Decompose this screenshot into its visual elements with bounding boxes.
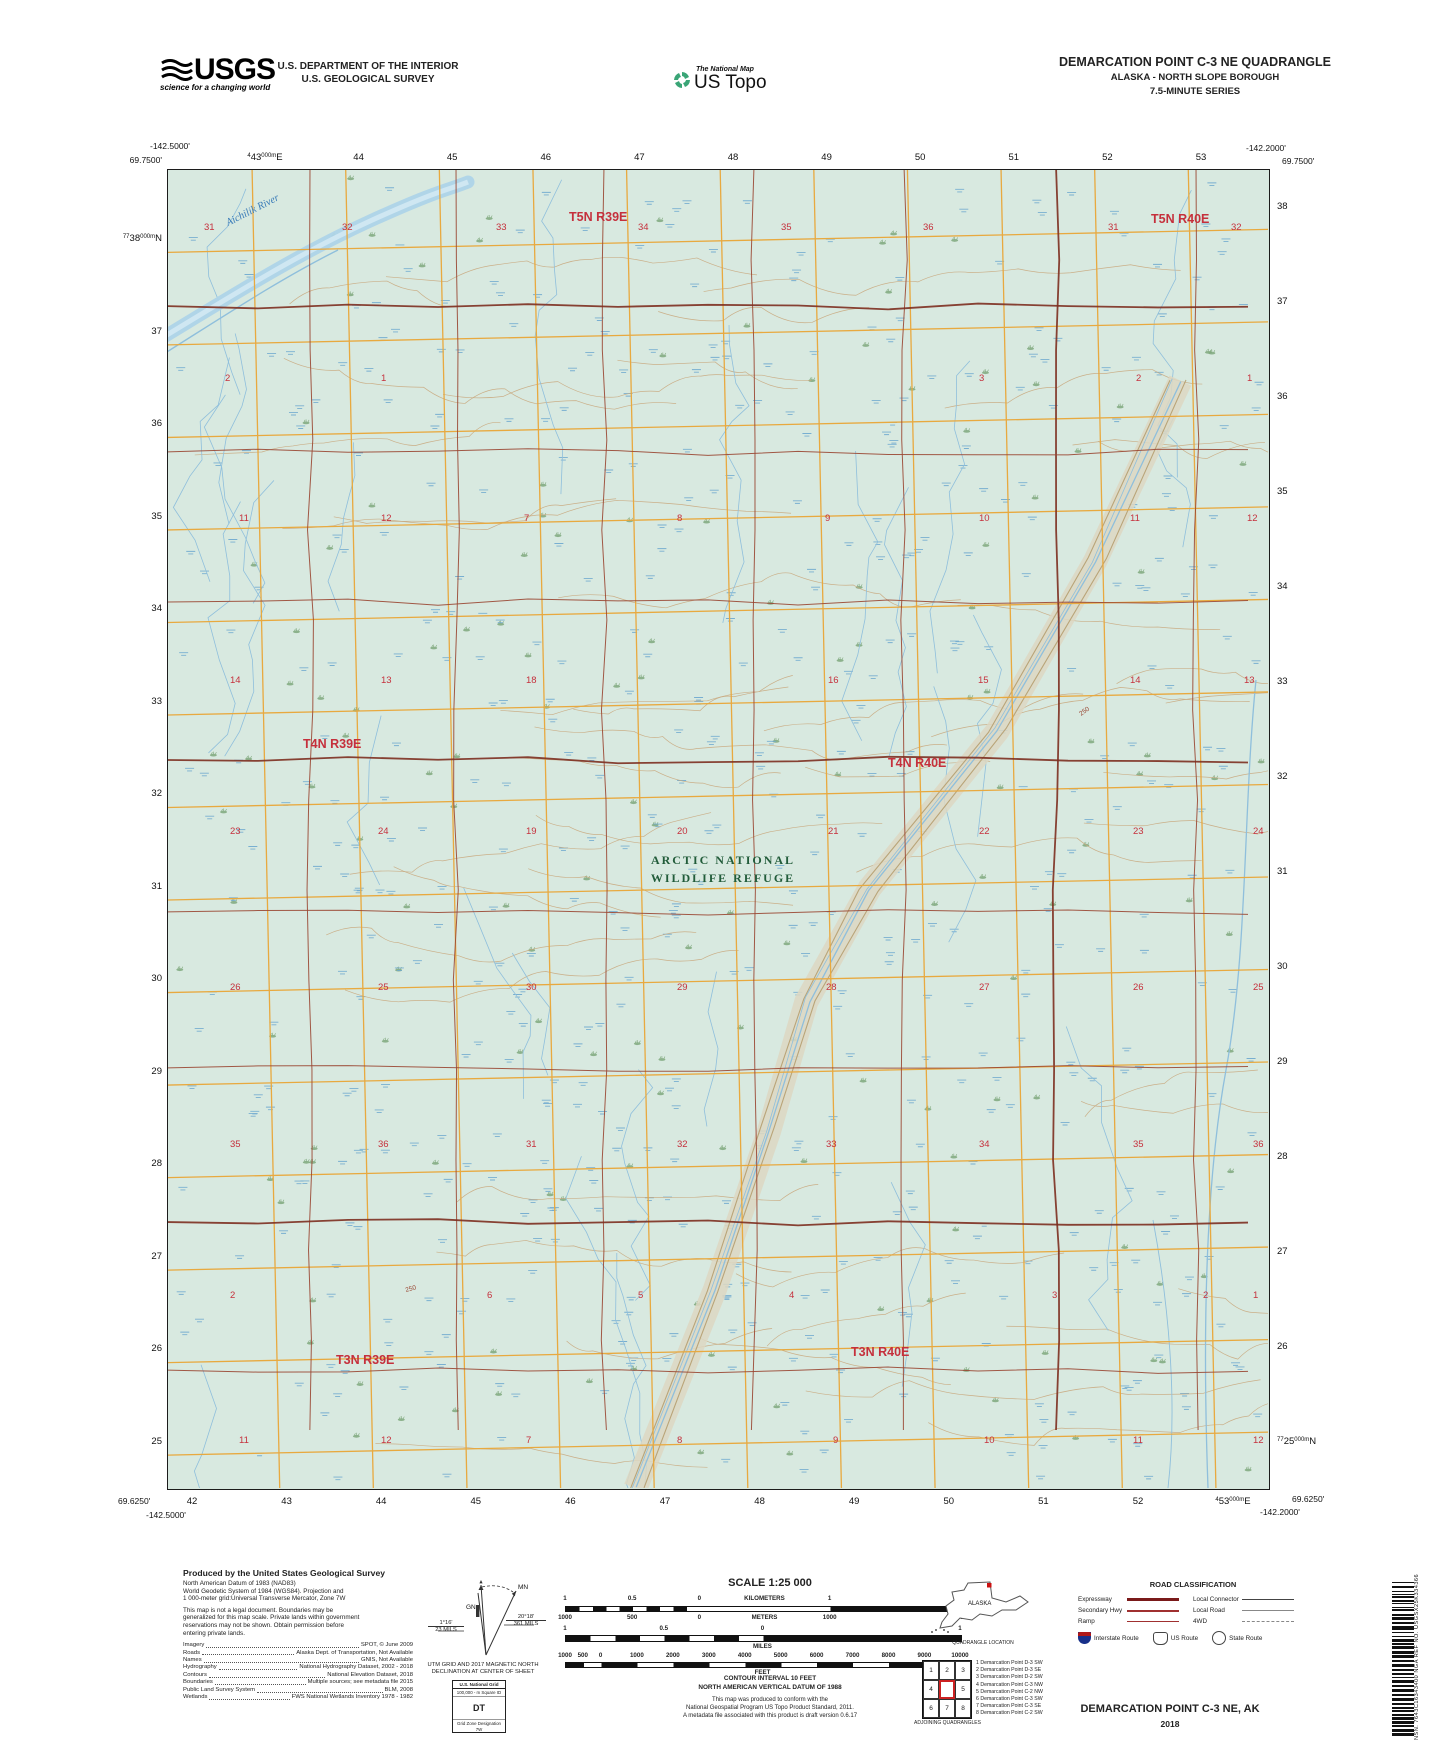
grid-northing-label: 7725000mN	[1277, 1436, 1316, 1447]
usgs-wave-icon	[160, 57, 194, 83]
section-number: 14	[1130, 675, 1141, 686]
usgs-topo-sheet: USGS science for a changing world U.S. D…	[0, 0, 1445, 1746]
grid-easting-label: 50	[915, 152, 926, 163]
quad-subtitle-2: 7.5-MINUTE SERIES	[1000, 86, 1390, 97]
data-source-row: RoadsAlaska Dept. of Transportation, Not…	[183, 1650, 413, 1657]
scale-tick-label: 4000	[738, 1652, 752, 1659]
contour-interval-note: CONTOUR INTERVAL 10 FEET	[555, 1675, 985, 1682]
km-scale-bar	[565, 1606, 962, 1612]
grid-easting-label: 46	[541, 152, 552, 163]
scale-tick-label: 0.5	[628, 1595, 637, 1602]
section-number: 16	[828, 675, 839, 686]
grid-northing-label: 27	[1277, 1246, 1288, 1257]
grid-easting-label: 45	[447, 152, 458, 163]
barcode-reference-numbers: NSN. 7643C16343400 NGA REF NO. USGSX25K3…	[1414, 1582, 1430, 1740]
scale-tick-label: 1000	[558, 1652, 572, 1659]
section-number: 12	[381, 1435, 392, 1446]
township-label: T4N R39E	[303, 737, 361, 751]
adjoining-quad-cell: 1	[923, 1661, 939, 1680]
usng-zone: 7W	[453, 1727, 505, 1732]
ustopo-label: US Topo	[694, 72, 792, 94]
scale-title: SCALE 1:25 000	[555, 1577, 985, 1589]
adjoining-item: 4 Demarcation Point C-3 NW	[976, 1682, 1066, 1689]
grid-northing-label: 33	[1277, 676, 1288, 687]
grid-northing-label: 29	[151, 1066, 162, 1077]
grid-easting-label: 50	[944, 1496, 955, 1507]
scale-tick-label: 500	[627, 1614, 637, 1621]
section-number: 26	[1133, 982, 1144, 993]
refuge-label-line2: WILDLIFE REFUGE	[651, 871, 795, 885]
contour-elevation-label: 250	[405, 1284, 418, 1294]
section-number: 35	[1133, 1139, 1144, 1150]
adjoining-item: 3 Demarcation Point D-2 SW	[976, 1674, 1066, 1681]
section-number: 11	[1130, 513, 1140, 524]
township-label: T3N R40E	[851, 1345, 909, 1359]
section-number: 14	[230, 675, 241, 686]
section-number: 8	[677, 1435, 682, 1446]
section-number: 10	[984, 1435, 995, 1446]
section-number: 28	[826, 982, 837, 993]
section-number: 31	[204, 222, 215, 233]
datum-line: North American Datum of 1983 (NAD83)	[183, 1580, 413, 1588]
data-source-row: Public Land Survey SystemBLM, 2008	[183, 1687, 413, 1694]
map-canvas: 3132333435363132213211112789101112141318…	[167, 169, 1270, 1490]
grid-northing-label: 36	[1277, 391, 1288, 402]
section-number: 1	[381, 373, 386, 384]
scale-tick-label: 6000	[810, 1652, 824, 1659]
road-label: 4WD	[1193, 1618, 1242, 1625]
adjoining-item: 8 Demarcation Point C-2 SW	[976, 1710, 1066, 1717]
department-heading: U.S. DEPARTMENT OF THE INTERIOR U.S. GEO…	[268, 60, 468, 86]
grid-easting-label: 51	[1009, 152, 1020, 163]
corner-top-right-lat: 69.7500'	[1282, 156, 1314, 166]
section-number: 27	[979, 982, 990, 993]
scale-tick-label: 3000	[702, 1652, 716, 1659]
barcode	[1392, 1582, 1414, 1740]
scale-tick-label: 1	[563, 1595, 566, 1602]
alaska-label: ALASKA	[968, 1601, 991, 1607]
section-number: 5	[638, 1290, 643, 1301]
section-number: 23	[1133, 826, 1144, 837]
section-number: 21	[828, 826, 839, 837]
section-number: 1	[1253, 1290, 1258, 1301]
shield-label: State Route	[1229, 1635, 1262, 1642]
section-number: 11	[1133, 1435, 1143, 1446]
adjoining-quad-cell: 3	[955, 1661, 971, 1680]
alaska-locator-map: ALASKA	[928, 1578, 1038, 1640]
grid-northing-label: 38	[1277, 201, 1288, 212]
contour-elevation-label: 250	[1078, 705, 1091, 717]
data-source-row: HydrographyNational Hydrography Dataset,…	[183, 1664, 413, 1671]
grid-northing-label: 28	[1277, 1151, 1288, 1162]
adjoining-item: 7 Demarcation Point C-3 SE	[976, 1703, 1066, 1710]
produced-by: Produced by the United States Geological…	[183, 1568, 413, 1578]
grid-northing-label: 33	[151, 696, 162, 707]
scale-tick-label: 1000	[558, 1614, 572, 1621]
adjoining-list: 1 Demarcation Point D-3 SW 2 Demarcation…	[976, 1660, 1066, 1718]
data-source-row: WetlandsFWS National Wetlands Inventory …	[183, 1694, 413, 1701]
scale-tick-label: 7000	[846, 1652, 860, 1659]
corner-top-left-lat: 69.7500'	[116, 155, 162, 165]
road-label: Expressway	[1078, 1596, 1127, 1603]
section-number: 32	[1231, 222, 1242, 233]
grid-northing-label: 28	[151, 1158, 162, 1169]
grid-northing-label: 27	[151, 1251, 162, 1262]
grid-north-label: GN	[466, 1604, 476, 1611]
section-number: 22	[979, 826, 990, 837]
grid-northing-label: 26	[1277, 1341, 1288, 1352]
data-source-row: ImagerySPOT, © June 2009	[183, 1642, 413, 1649]
section-number: 10	[979, 513, 990, 524]
section-number: 2	[1203, 1290, 1208, 1301]
scale-tick-label: 0.5	[659, 1625, 668, 1632]
section-number: 35	[230, 1139, 241, 1150]
dept-line2: U.S. GEOLOGICAL SURVEY	[268, 73, 468, 86]
grid-northing-label: 34	[1277, 581, 1288, 592]
section-number: 11	[239, 1435, 249, 1446]
usgs-wordmark: USGS	[194, 55, 275, 85]
standard-line: National Geospatial Program US Topo Prod…	[555, 1705, 985, 1711]
grid-easting-label: 47	[634, 152, 645, 163]
corner-bottom-left-lon: -142.5000'	[146, 1510, 186, 1520]
grid-northing-label: 32	[1277, 771, 1288, 782]
section-number: 12	[1253, 1435, 1264, 1446]
corner-top-left-lon: -142.5000'	[150, 141, 190, 151]
adjoining-quad-cell: 2	[939, 1661, 955, 1680]
section-number: 1	[1247, 373, 1252, 384]
township-label: T5N R40E	[1151, 212, 1209, 226]
section-number: 8	[677, 513, 682, 524]
section-number: 33	[496, 222, 507, 233]
quadrangle-location-caption: QUADRANGLE LOCATION	[928, 1640, 1038, 1646]
sheet-year: 2018	[1060, 1719, 1280, 1729]
section-number: 6	[487, 1290, 492, 1301]
road-label: Local Connector	[1193, 1596, 1242, 1603]
km-scale-labels: 10.50KILOMETERS12	[565, 1595, 960, 1604]
local-road-line-sample	[1242, 1610, 1294, 1611]
section-number: 7	[526, 1435, 531, 1446]
section-number: 30	[526, 982, 537, 993]
feet-scale-bar	[565, 1662, 962, 1668]
scale-tick-label: METERS	[752, 1614, 778, 1621]
data-source-row: BoundariesMultiple sources; see metadata…	[183, 1679, 413, 1686]
grid-northing-label: 37	[1277, 296, 1288, 307]
section-number: 34	[638, 222, 649, 233]
data-source-row: ContoursNational Elevation Dataset, 2018	[183, 1672, 413, 1679]
township-label: T3N R39E	[336, 1353, 394, 1367]
section-number: 15	[978, 675, 989, 686]
corner-top-right-lon: -142.2000'	[1246, 143, 1286, 153]
section-number: 29	[677, 982, 688, 993]
data-sources-list: ImagerySPOT, © June 2009RoadsAlaska Dept…	[183, 1642, 413, 1701]
legal-line: generalized for this map scale. Private …	[183, 1614, 413, 1622]
miles-scale-bar	[565, 1635, 962, 1642]
section-number: 3	[1052, 1290, 1057, 1301]
grid-northing-label: 35	[151, 511, 162, 522]
section-number: 4	[789, 1290, 794, 1301]
topo-map-art: 3132333435363132213211112789101112141318…	[168, 170, 1268, 1488]
section-number: 26	[230, 982, 241, 993]
quad-subtitle-1: ALASKA - NORTH SLOPE BOROUGH	[1000, 72, 1390, 83]
scale-tick-label: 0	[698, 1595, 701, 1602]
scale-tick-label: 1000	[630, 1652, 644, 1659]
section-number: 32	[342, 222, 353, 233]
road-label: Secondary Hwy	[1078, 1607, 1127, 1614]
grid-northing-label: 34	[151, 603, 162, 614]
grid-easting-label: 45	[471, 1496, 482, 1507]
scale-tick-label: 10000	[951, 1652, 968, 1659]
section-number: 36	[1253, 1139, 1264, 1150]
standard-line: A metadata file associated with this pro…	[555, 1713, 985, 1719]
miles-caption: MILES	[565, 1643, 960, 1650]
shield-label: Interstate Route	[1094, 1635, 1139, 1642]
section-number: 19	[526, 826, 537, 837]
corner-bottom-right-lat: 69.6250'	[1292, 1494, 1324, 1504]
road-classification: ROAD CLASSIFICATION Expressway Local Con…	[1078, 1580, 1308, 1645]
grid-easting-label: 46	[565, 1496, 576, 1507]
secondary-hwy-line-sample	[1127, 1610, 1179, 1612]
adjoining-caption: ADJOINING QUADRANGLES	[905, 1720, 990, 1726]
road-classification-title: ROAD CLASSIFICATION	[1078, 1580, 1308, 1589]
dept-line1: U.S. DEPARTMENT OF THE INTERIOR	[268, 60, 468, 73]
section-number: 33	[826, 1139, 837, 1150]
scale-tick-label: 8000	[882, 1652, 896, 1659]
scale-tick-label: 1000	[823, 1614, 837, 1621]
section-number: 25	[378, 982, 389, 993]
legal-line: This map is not a legal document. Bounda…	[183, 1607, 413, 1615]
section-number: 36	[923, 222, 934, 233]
data-source-row: NamesGNIS, Not Available	[183, 1657, 413, 1664]
sheet-title-block: DEMARCATION POINT C-3 NE, AK 2018	[1060, 1703, 1280, 1729]
grid-easting-label: 49	[821, 152, 832, 163]
quad-title: DEMARCATION POINT C-3 NE QUADRANGLE	[1000, 55, 1390, 69]
magnetic-north-label: MN	[518, 1584, 528, 1591]
scale-tick-label: 0	[698, 1614, 701, 1621]
feet-scale-labels: 1000500010002000300040005000600070008000…	[565, 1652, 960, 1661]
section-number: 24	[1253, 826, 1264, 837]
corner-bottom-right-lon: -142.2000'	[1260, 1507, 1300, 1517]
adjoining-quad-cell: 8	[955, 1699, 971, 1718]
section-number: 31	[526, 1139, 537, 1150]
scale-tick-label: 500	[578, 1652, 588, 1659]
section-number: 12	[1247, 513, 1258, 524]
usng-square-id: DT	[453, 1697, 505, 1719]
quad-title-block: DEMARCATION POINT C-3 NE QUADRANGLE ALAS…	[1000, 55, 1390, 97]
grid-easting-label: 49	[849, 1496, 860, 1507]
section-number: 35	[781, 222, 792, 233]
grid-northing-label: 30	[151, 973, 162, 984]
grid-northing-label: 25	[151, 1436, 162, 1447]
miles-scale-labels: 10.501	[565, 1625, 960, 1634]
section-number: 13	[1244, 675, 1255, 686]
section-number: 20	[677, 826, 688, 837]
grid-northing-label: 29	[1277, 1056, 1288, 1067]
datum-line: World Geodetic System of 1984 (WGS84). P…	[183, 1588, 413, 1596]
legal-line: reservations may not be shown. Obtain pe…	[183, 1622, 413, 1630]
adjoining-item: 5 Demarcation Point C-2 NW	[976, 1689, 1066, 1696]
section-number: 12	[381, 513, 392, 524]
adjoining-item: 6 Demarcation Point C-3 SW	[976, 1696, 1066, 1703]
state-route-icon	[1212, 1631, 1226, 1645]
grid-easting-label: 43	[281, 1496, 292, 1507]
datum-line: 1 000-meter grid:Universal Transverse Me…	[183, 1595, 413, 1603]
grid-easting-label: 453000mE	[1215, 1496, 1250, 1507]
township-label: T5N R39E	[569, 210, 627, 224]
refuge-label-line1: ARCTIC NATIONAL	[651, 853, 795, 867]
section-number: 7	[524, 513, 529, 524]
section-number: 25	[1253, 982, 1264, 993]
current-quad-cell	[939, 1680, 955, 1699]
scale-tick-label: 0	[761, 1625, 764, 1632]
adjoining-quad-cell: 7	[939, 1699, 955, 1718]
usng-zone-label: Grid Zone Designation	[453, 1719, 505, 1727]
adjoining-quad-cell: 5	[955, 1680, 971, 1699]
production-credits: Produced by the United States Geological…	[183, 1568, 413, 1701]
grid-northing-label: 37	[151, 326, 162, 337]
ustopo-icon	[672, 70, 692, 90]
usng-title: U.S. National Grid	[453, 1681, 505, 1689]
grid-northing-label: 32	[151, 788, 162, 799]
grid-northing-label: 31	[151, 881, 162, 892]
grid-northing-label: 36	[151, 418, 162, 429]
grid-easting-label: 48	[728, 152, 739, 163]
shield-label: US Route	[1171, 1635, 1198, 1642]
section-number: 18	[526, 675, 537, 686]
section-number: 9	[833, 1435, 838, 1446]
adjoining-quad-cell: 6	[923, 1699, 939, 1718]
usng-subtitle: 100,000 - m Square ID	[453, 1689, 505, 1697]
adjoining-quad-cell: 4	[923, 1680, 939, 1699]
scale-tick-label: 1	[828, 1595, 831, 1602]
grid-northing-label: 30	[1277, 961, 1288, 972]
scale-tick-label: KILOMETERS	[744, 1595, 785, 1602]
sheet-name: DEMARCATION POINT C-3 NE, AK	[1060, 1703, 1280, 1715]
declination-caption: UTM GRID AND 2017 MAGNETIC NORTH DECLINA…	[408, 1662, 558, 1676]
section-number: 3	[979, 373, 984, 384]
scale-tick-label: 9000	[918, 1652, 932, 1659]
scale-tick-label: 1	[563, 1625, 566, 1632]
section-number: 9	[825, 513, 830, 524]
grid-easting-label: 443000mE	[247, 152, 282, 163]
section-number: 24	[378, 826, 389, 837]
ustopo-logo: The National Map US Topo	[672, 66, 792, 94]
scale-tick-label: 5000	[774, 1652, 788, 1659]
section-number: 31	[1108, 222, 1119, 233]
grid-easting-label: 42	[187, 1496, 198, 1507]
section-number: 2	[230, 1290, 235, 1301]
scale-tick-label: 2000	[666, 1652, 680, 1659]
usng-box: U.S. National Grid 100,000 - m Square ID…	[452, 1680, 506, 1733]
fourwd-line-sample	[1242, 1621, 1294, 1622]
quad-location-dot	[987, 1583, 992, 1588]
meters-scale-labels: 10005000METERS10002000	[565, 1614, 960, 1623]
grid-easting-label: 47	[660, 1496, 671, 1507]
adjoining-item: 1 Demarcation Point D-3 SW	[976, 1660, 1066, 1667]
grid-easting-label: 53	[1196, 152, 1207, 163]
us-route-shield-icon	[1153, 1632, 1168, 1645]
grid-easting-label: 52	[1102, 152, 1113, 163]
grid-northing-label: 35	[1277, 486, 1288, 497]
adjoining-quadrangles-grid: 12345678	[922, 1660, 972, 1719]
section-number: 36	[378, 1139, 389, 1150]
adjoining-item: 2 Demarcation Point D-3 SE	[976, 1667, 1066, 1674]
section-number: 2	[225, 373, 230, 384]
grid-easting-label: 44	[376, 1496, 387, 1507]
gn-declination-value: 1°16' 23 MILS	[428, 1620, 464, 1633]
corner-bottom-left-lat: 69.6250'	[118, 1496, 150, 1506]
section-number: 23	[230, 826, 241, 837]
ramp-line-sample	[1127, 1621, 1179, 1622]
legal-line: entering private lands.	[183, 1630, 413, 1638]
grid-easting-label: 48	[754, 1496, 765, 1507]
interstate-shield-icon	[1078, 1632, 1091, 1644]
section-number: 32	[677, 1139, 688, 1150]
grid-easting-label: 52	[1133, 1496, 1144, 1507]
grid-easting-label: 51	[1038, 1496, 1049, 1507]
road-label: Local Road	[1193, 1607, 1242, 1614]
vertical-datum-note: NORTH AMERICAN VERTICAL DATUM OF 1988	[555, 1684, 985, 1691]
expressway-line-sample	[1127, 1598, 1179, 1601]
section-number: 34	[979, 1139, 990, 1150]
local-connector-line-sample	[1242, 1599, 1294, 1600]
road-label: Ramp	[1078, 1618, 1127, 1625]
section-number: 13	[381, 675, 392, 686]
grid-northing-label: 7738000mN	[123, 233, 162, 244]
mn-declination-value: 20°18' 361 MILS	[506, 1614, 546, 1627]
grid-northing-label: 31	[1277, 866, 1288, 877]
standard-line: This map was produced to conform with th…	[555, 1697, 985, 1703]
township-label: T4N R40E	[888, 756, 946, 770]
scale-tick-label: 0	[599, 1652, 602, 1659]
section-number: 11	[239, 513, 249, 524]
grid-northing-label: 26	[151, 1343, 162, 1354]
grid-easting-label: 44	[353, 152, 364, 163]
section-number: 2	[1136, 373, 1141, 384]
